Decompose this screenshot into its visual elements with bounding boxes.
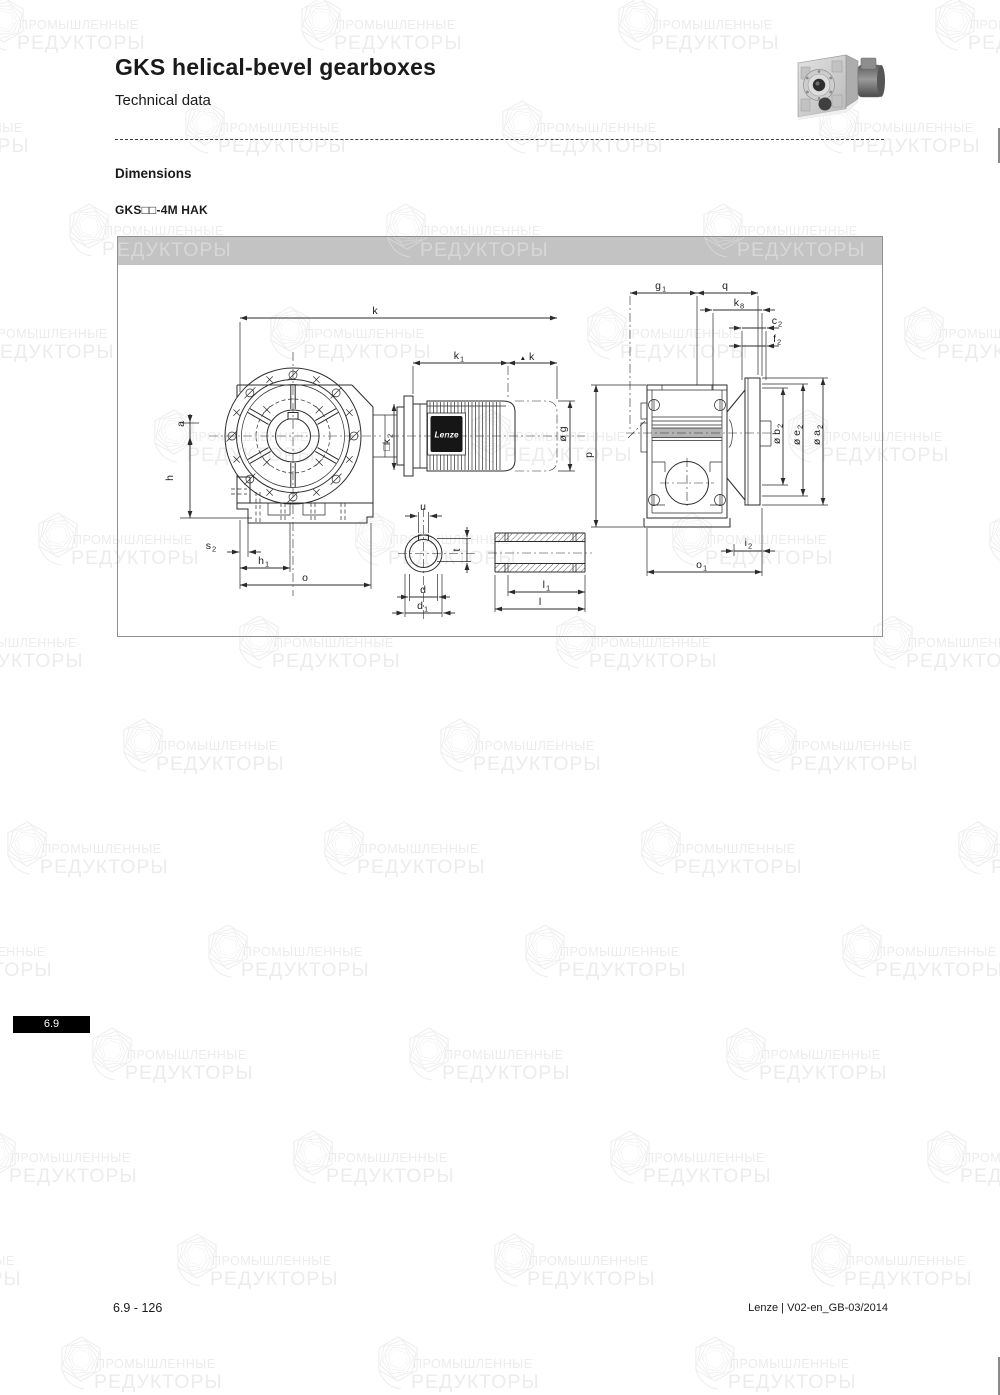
watermark-text-line1: ПРОМЫШЛЕННЫЕ [336,18,456,32]
watermark-text-line1: ПРОМЫШЛЕННЫЕ [475,739,595,753]
hexagon-swirl-icon [901,295,947,363]
watermark-text-line1: ПРОМЫШЛЕННЫЕ [877,945,997,959]
watermark-unit: ПРОМЫШЛЕННЫЕ РЕДУКТОРЫ [205,913,425,1003]
dim-label-d: d [420,584,426,596]
dim-label-l1: l1 [543,579,551,593]
watermark-text-line2: РЕДУКТОРЫ [0,1268,22,1291]
watermark-text-line1: ПРОМЫШЛЕННЫЕ [854,121,974,135]
watermark-text-line1: ПРОМЫШЛЕННЫЕ [653,18,773,32]
watermark-text-line2: РЕДУКТОРЫ [0,959,53,982]
svg-text:t: t [451,548,463,551]
dim-label-q: q [722,280,728,292]
technical-drawing: Lenze [117,236,883,637]
watermark-text-line2: РЕДУКТОРЫ [960,1165,1000,1188]
svg-text:1: 1 [265,560,269,569]
watermark-unit: ПРОМЫШЛЕННЫЕ РЕДУКТОРЫ [0,1222,77,1312]
dim-label-u: u [420,501,426,513]
watermark-text-line1: ПРОМЫШЛЕННЫЕ [243,945,363,959]
svg-text:2: 2 [796,425,805,429]
dim-label-o1: o1 [696,559,707,573]
watermark-text-line1: ПРОМЫШЛЕННЫЕ [158,739,278,753]
watermark-text-line2: РЕДУКТОРЫ [125,1062,254,1085]
watermark-text-line2: РЕДУКТОРЫ [94,1371,223,1394]
svg-text:2: 2 [816,425,825,429]
hexagon-swirl-icon [406,1016,452,1084]
svg-text:1: 1 [703,564,707,573]
watermark-text-line1: ПРОМЫШЛЕННЫЕ [730,1357,850,1371]
watermark-text-line1: ПРОМЫШЛЕННЫЕ [42,842,162,856]
dim-label-k: k [372,305,378,317]
model-label: GKS□□-4M HAK [115,203,208,217]
hexagon-swirl-icon [35,501,81,569]
dim-label-h1: h1 [258,555,269,569]
hexagon-swirl-icon [955,810,1000,878]
watermark-text-line2: РЕДУКТОРЫ [210,1268,339,1291]
watermark-unit: ПРОМЫШЛЕННЫЕ РЕДУКТОРЫ [0,398,54,488]
watermark-text-line1: ПРОМЫШЛЕННЫЕ [939,327,1000,341]
watermark-text-line2: РЕДУКТОРЫ [40,856,169,879]
svg-text:h: h [164,475,176,481]
dim-label-p: p [583,452,595,458]
motor-brand-label: Lenze [434,430,458,440]
hexagon-swirl-icon [808,1222,854,1290]
svg-text:ø b: ø b [771,429,783,444]
hexagon-swirl-icon [522,913,568,981]
watermark-text-line2: РЕДУКТОРЫ [473,753,602,776]
hexagon-swirl-icon [615,0,661,54]
watermark-text-line1: ПРОМЫШЛЕННЫЕ [0,636,77,650]
watermark-unit: ПРОМЫШЛЕННЫЕ РЕДУКТОРЫ [375,1325,595,1395]
footer-document-id: Lenze | V02-en_GB-03/2014 [0,1302,888,1314]
watermark-text-line1: ПРОМЫШЛЕННЫЕ [529,1254,649,1268]
watermark-unit: ПРОМЫШЛЕННЫЕ РЕДУКТОРЫ [839,913,1000,1003]
watermark-unit: ПРОМЫШЛЕННЫЕ РЕДУКТОРЫ [182,89,402,179]
hexagon-swirl-icon [692,1325,738,1393]
watermark-text-line2: РЕДУКТОРЫ [411,1371,540,1394]
svg-text:l: l [543,579,545,591]
watermark-text-line2: РЕДУКТОРЫ [674,856,803,879]
watermark-text-line2: РЕДУКТОРЫ [651,32,780,55]
hexagon-swirl-icon [932,0,978,54]
watermark-text-line1: ПРОМЫШЛЕННЫЕ [761,1048,881,1062]
svg-text:2: 2 [778,320,782,329]
watermark-text-line2: РЕДУКТОРЫ [643,1165,772,1188]
watermark-unit: ПРОМЫШЛЕННЫЕ РЕДУКТОРЫ [174,1222,394,1312]
hexagon-swirl-icon [290,1119,336,1187]
dim-label-dia-g: ø g [557,426,569,441]
watermark-text-line1: ПРОМЫШЛЕННЫЕ [645,1151,765,1165]
dim-label-t: t [451,548,463,551]
hexagon-swirl-icon [638,810,684,878]
dim-label-d1: d1 [417,600,428,614]
shaft-side-section [488,533,592,572]
svg-text:a: a [175,421,187,427]
watermark-unit: ПРОМЫШЛЕННЫЕ РЕДУКТОРЫ [932,0,1000,76]
section-heading: Dimensions [115,166,192,181]
watermark-text-line2: РЕДУКТОРЫ [272,650,401,673]
watermark-unit: ПРОМЫШЛЕННЫЕ РЕДУКТОРЫ [491,1222,711,1312]
dim-label-h: h [164,475,176,481]
watermark-text-line1: ПРОМЫШЛЕННЫЕ [962,1151,1000,1165]
watermark-text-line2: РЕДУКТОРЫ [558,959,687,982]
watermark-unit: ПРОМЫШЛЕННЫЕ РЕДУКТОРЫ [0,707,23,797]
watermark-unit: ПРОМЫШЛЕННЫЕ РЕДУКТОРЫ [955,810,1000,900]
watermark-text-line1: ПРОМЫШЛЕННЫЕ [127,1048,247,1062]
watermark-text-line1: ПРОМЫШЛЕННЫЕ [591,636,711,650]
hexagon-swirl-icon [0,0,27,54]
watermark-unit: ПРОМЫШЛЕННЫЕ РЕДУКТОРЫ [808,1222,1000,1312]
page-subtitle: Technical data [115,92,211,109]
hexagon-swirl-icon [437,707,483,775]
hexagon-swirl-icon [321,810,367,878]
dim-label-f2: f2 [773,333,781,347]
hexagon-swirl-icon [58,1325,104,1393]
watermark-text-line1: ПРОМЫШЛЕННЫЕ [19,18,139,32]
hexagon-swirl-icon [89,1016,135,1084]
watermark-unit: ПРОМЫШЛЕННЫЕ РЕДУКТОРЫ [120,707,340,797]
hexagon-swirl-icon [491,1222,537,1290]
watermark-text-line1: ПРОМЫШЛЕННЫЕ [212,1254,332,1268]
watermark-text-line2: РЕДУКТОРЫ [17,32,146,55]
gearbox-product-photo [788,47,894,123]
svg-text:1: 1 [424,605,428,614]
watermark-text-line2: РЕДУКТОРЫ [589,650,718,673]
side-view-motor: Lenze [390,366,585,476]
housing-bolt-holes [649,399,726,506]
watermark-text-line2: РЕДУКТОРЫ [357,856,486,879]
watermark-text-line1: ПРОМЫШЛЕННЫЕ [359,842,479,856]
hexagon-swirl-icon [205,913,251,981]
svg-text:g: g [655,280,661,292]
svg-text:f: f [773,333,776,345]
watermark-unit: ПРОМЫШЛЕННЫЕ РЕДУКТОРЫ [290,1119,510,1209]
hexagon-swirl-icon [120,707,166,775]
watermark-text-line1: ПРОМЫШЛЕННЫЕ [274,636,394,650]
watermark-text-line2: РЕДУКТОРЫ [0,650,84,673]
watermark-text-line2: РЕДУКТОРЫ [156,753,285,776]
dim-label-a: a [175,421,187,427]
hexagon-swirl-icon [499,89,545,157]
watermark-text-line2: РЕДУКТОРЫ [241,959,370,982]
dashed-separator [115,139,884,140]
dim-label-k1: k1 [454,350,464,364]
watermark-unit: ПРОМЫШЛЕННЫЕ РЕДУКТОРЫ [0,913,108,1003]
hexagon-swirl-icon [924,1119,970,1187]
dim-label-dia-e2: ø e2 [791,425,805,445]
watermark-unit: ПРОМЫШЛЕННЫЕ РЕДУКТОРЫ [754,707,974,797]
shaft-cross-section [398,508,475,620]
watermark-text-line2: РЕДУКТОРЫ [334,32,463,55]
hexagon-swirl-icon [607,1119,653,1187]
watermark-text-line2: РЕДУКТОРЫ [0,341,115,364]
svg-text:2: 2 [386,434,395,438]
watermark-text-line1: ПРОМЫШЛЕННЫЕ [96,1357,216,1371]
watermark-text-line1: ПРОМЫШЛЕННЫЕ [0,945,46,959]
dim-label-delta-k: ▲k [520,351,535,363]
dim-label-s2: s2 [206,540,216,554]
svg-text:1: 1 [460,355,464,364]
watermark-text-line2: РЕДУКТОРЫ [9,1165,138,1188]
svg-text:2: 2 [748,542,752,551]
watermark-unit: ПРОМЫШЛЕННЫЕ РЕДУКТОРЫ [522,913,742,1003]
hexagon-swirl-icon [66,192,112,260]
svg-text:8: 8 [740,302,744,311]
watermark-text-line2: РЕДУКТОРЫ [906,650,1000,673]
watermark-unit: ПРОМЫШЛЕННЫЕ РЕДУКТОРЫ [499,89,719,179]
dim-label-c2: c2 [772,315,782,329]
page-title: GKS helical-bevel gearboxes [115,54,436,81]
watermark-unit: ПРОМЫШЛЕННЫЕ РЕДУКТОРЫ [870,604,1000,694]
watermark-text-line1: ПРОМЫШЛЕННЫЕ [0,1254,15,1268]
watermark-unit: ПРОМЫШЛЕННЫЕ РЕДУКТОРЫ [924,1119,1000,1209]
svg-text:2: 2 [776,424,785,428]
watermark-unit: ПРОМЫШЛЕННЫЕ РЕДУКТОРЫ [901,295,1000,385]
svg-text:k: k [454,350,460,362]
watermark-text-line2: РЕДУКТОРЫ [728,1371,857,1394]
svg-text:1: 1 [662,285,666,294]
dim-label-g1: g1 [655,280,666,294]
watermark-unit: ПРОМЫШЛЕННЫЕ РЕДУКТОРЫ [0,89,85,179]
watermark-unit: ПРОМЫШЛЕННЫЕ РЕДУКТОРЫ [406,1016,626,1106]
watermark-text-line1: ПРОМЫШЛЕННЫЕ [328,1151,448,1165]
hexagon-swirl-icon [0,1119,19,1187]
watermark-text-line2: РЕДУКТОРЫ [844,1268,973,1291]
dim-label-dia-a2: ø a2 [811,425,825,445]
watermark-unit: ПРОМЫШЛЕННЫЕ РЕДУКТОРЫ [58,1325,278,1395]
dim-label-k8: k8 [734,297,744,311]
watermark-text-line1: ПРОМЫШЛЕННЫЕ [993,842,1000,856]
watermark-text-line1: ПРОМЫШЛЕННЫЕ [676,842,796,856]
watermark-text-line1: ПРОМЫШЛЕННЫЕ [220,121,340,135]
svg-text:p: p [583,452,595,458]
watermark-text-line2: РЕДУКТОРЫ [0,135,30,158]
front-view [209,352,397,596]
hexagon-swirl-icon [298,0,344,54]
svg-text:c: c [772,315,777,327]
svg-text:s: s [206,540,211,552]
svg-text:2: 2 [212,545,216,554]
watermark-text-line1: ПРОМЫШЛЕННЫЕ [970,18,1000,32]
watermark-unit: ПРОМЫШЛЕННЫЕ РЕДУКТОРЫ [638,810,858,900]
watermark-text-line2: РЕДУКТОРЫ [991,856,1000,879]
svg-text:d: d [417,600,423,612]
watermark-text-line1: ПРОМЫШЛЕННЫЕ [908,636,1000,650]
svg-text:o: o [696,559,702,571]
svg-text:1: 1 [546,584,550,593]
right-view [626,378,772,527]
watermark-text-line2: РЕДУКТОРЫ [937,341,1000,364]
hexagon-swirl-icon [986,501,1000,569]
watermark-unit: ПРОМЫШЛЕННЫЕ РЕДУКТОРЫ [692,1325,912,1395]
watermark-text-line1: ПРОМЫШЛЕННЫЕ [560,945,680,959]
hexagon-swirl-icon [839,913,885,981]
svg-text:k: k [529,351,535,363]
hexagon-swirl-icon [754,707,800,775]
hexagon-swirl-icon [4,810,50,878]
dim-label-dia-b2: ø b2 [771,424,785,444]
watermark-unit: ПРОМЫШЛЕННЫЕ РЕДУКТОРЫ [723,1016,943,1106]
watermark-text-line2: РЕДУКТОРЫ [790,753,919,776]
watermark-text-line1: ПРОМЫШЛЕННЫЕ [444,1048,564,1062]
watermark-unit: ПРОМЫШЛЕННЫЕ РЕДУКТОРЫ [89,1016,309,1106]
watermark-text-line1: ПРОМЫШЛЕННЫЕ [0,121,23,135]
dim-label-o: o [302,572,308,584]
dimension-labels: k k1 ▲k a h □k2 s2 h1 o u t d d1 l1 l g1… [164,280,825,614]
watermark-text-line1: ПРОМЫШЛЕННЫЕ [413,1357,533,1371]
svg-text:2: 2 [777,338,781,347]
watermark-text-line2: РЕДУКТОРЫ [527,1268,656,1291]
watermark-text-line2: РЕДУКТОРЫ [442,1062,571,1085]
hexagon-swirl-icon [375,1325,421,1393]
hexagon-swirl-icon [723,1016,769,1084]
hexagon-swirl-icon [174,1222,220,1290]
watermark-unit: ПРОМЫШЛЕННЫЕ РЕДУКТОРЫ [607,1119,827,1209]
svg-text:▲: ▲ [520,355,526,362]
svg-text:□k: □k [381,438,393,450]
watermark-unit: ПРОМЫШЛЕННЫЕ РЕДУКТОРЫ [321,810,541,900]
chapter-tab: 6.9 [13,1016,90,1033]
svg-text:ø e: ø e [791,430,803,445]
watermark-unit: ПРОМЫШЛЕННЫЕ РЕДУКТОРЫ [4,810,224,900]
svg-text:h: h [258,555,264,567]
watermark-unit: ПРОМЫШЛЕННЫЕ РЕДУКТОРЫ [986,501,1000,591]
document-page: ПРОМЫШЛЕННЫЕ РЕДУКТОРЫ ПРОМЫШЛЕННЫЕ РЕДУ… [0,0,1000,1395]
watermark-unit: ПРОМЫШЛЕННЫЕ РЕДУКТОРЫ [0,1119,193,1209]
watermark-text-line1: ПРОМЫШЛЕННЫЕ [846,1254,966,1268]
dim-label-l: l [539,596,541,608]
watermark-text-line2: РЕДУКТОРЫ [875,959,1000,982]
watermark-text-line1: ПРОМЫШЛЕННЫЕ [0,327,108,341]
watermark-text-line2: РЕДУКТОРЫ [759,1062,888,1085]
watermark-text-line2: РЕДУКТОРЫ [326,1165,455,1188]
watermark-text-line1: ПРОМЫШЛЕННЫЕ [11,1151,131,1165]
watermark-text-line1: ПРОМЫШЛЕННЫЕ [792,739,912,753]
watermark-unit: ПРОМЫШЛЕННЫЕ РЕДУКТОРЫ [437,707,657,797]
svg-text:ø a: ø a [811,430,823,445]
watermark-text-line1: ПРОМЫШЛЕННЫЕ [537,121,657,135]
svg-text:ø g: ø g [557,426,569,441]
svg-text:k: k [734,297,740,309]
dim-label-k2: □k2 [381,434,395,451]
dim-label-i2: i2 [745,537,753,551]
svg-text:i: i [745,537,747,549]
watermark-text-line2: РЕДУКТОРЫ [968,32,1000,55]
